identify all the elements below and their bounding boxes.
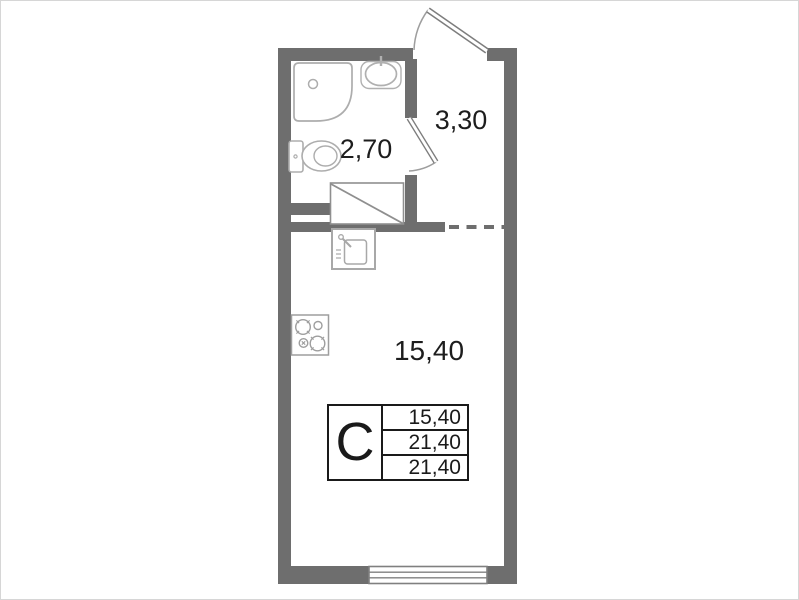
kitchen-sink-icon [332, 229, 375, 269]
legend-type-letter: C [329, 406, 383, 479]
wall-bottom-right-of-window [487, 566, 517, 584]
legend-row-total-area: 21,40 [383, 431, 467, 456]
legend-row-overall-area: 21,40 [383, 456, 467, 479]
bathroom-door-swing-arc [409, 162, 436, 171]
wall-bathroom-right-upper [405, 59, 417, 118]
floor-plan: 2,70 3,30 15,40 C 15,40 21,40 21,40 [0, 0, 799, 600]
shower-icon [294, 63, 352, 121]
window-icon [369, 567, 487, 584]
vent-shaft-icon [331, 183, 404, 224]
wall-bottom-left-of-window [278, 566, 369, 584]
floor-plan-drawing [0, 0, 799, 600]
wall-bathroom-bottom-niche [285, 203, 330, 215]
legend-area-rows: 15,40 21,40 21,40 [383, 406, 467, 479]
wall-top-left-of-entrance [278, 48, 413, 61]
bathroom-area-label: 2,70 [332, 136, 400, 163]
hallway-area-label: 3,30 [427, 107, 495, 134]
legend-row-living-area: 15,40 [383, 406, 467, 431]
living-room-area-label: 15,40 [390, 337, 468, 365]
entrance-door-swing-arc [414, 10, 428, 50]
wall-left [278, 48, 291, 584]
stove-icon [292, 315, 329, 355]
entrance-door-icon [414, 10, 487, 51]
legend-table: C 15,40 21,40 21,40 [327, 404, 469, 481]
wall-right [504, 48, 517, 584]
